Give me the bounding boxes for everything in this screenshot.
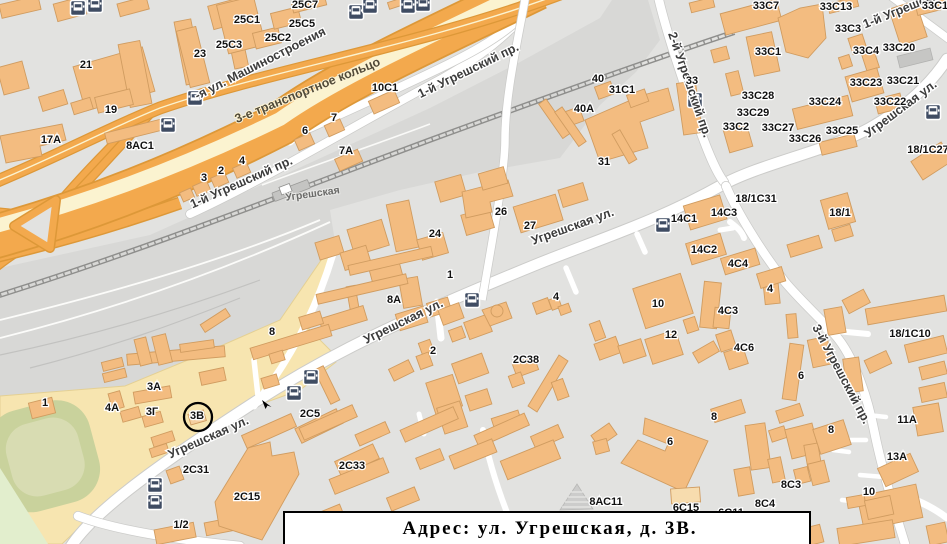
svg-text:6: 6 <box>667 436 673 448</box>
svg-text:3В: 3В <box>190 410 204 422</box>
svg-text:24: 24 <box>429 228 442 240</box>
svg-text:33С13: 33С13 <box>820 1 852 13</box>
svg-text:3: 3 <box>201 172 207 184</box>
svg-text:4: 4 <box>553 291 560 303</box>
svg-text:8АС1: 8АС1 <box>126 140 154 152</box>
svg-text:31С1: 31С1 <box>609 84 635 96</box>
svg-text:14С1: 14С1 <box>671 213 697 225</box>
svg-text:33С4: 33С4 <box>853 45 880 57</box>
svg-text:7: 7 <box>331 112 337 124</box>
svg-text:6: 6 <box>302 125 308 137</box>
svg-text:25С1: 25С1 <box>234 14 260 26</box>
svg-text:33С20: 33С20 <box>883 42 915 54</box>
svg-text:10С1: 10С1 <box>372 82 398 94</box>
svg-text:4: 4 <box>767 283 774 295</box>
svg-text:33С22: 33С22 <box>874 96 906 108</box>
svg-text:4А: 4А <box>105 402 119 414</box>
svg-text:2С31: 2С31 <box>183 464 209 476</box>
svg-text:18/1: 18/1 <box>829 207 850 219</box>
svg-text:33С29: 33С29 <box>737 107 769 119</box>
svg-text:8: 8 <box>269 326 275 338</box>
svg-text:4: 4 <box>239 155 246 167</box>
svg-text:8: 8 <box>828 424 834 436</box>
svg-text:14С2: 14С2 <box>691 244 717 256</box>
svg-text:18/1С27: 18/1С27 <box>907 144 947 156</box>
svg-text:3А: 3А <box>147 381 161 393</box>
svg-text:31: 31 <box>598 156 610 168</box>
svg-text:8С3: 8С3 <box>781 479 801 491</box>
svg-text:4С3: 4С3 <box>718 305 738 317</box>
svg-text:2С5: 2С5 <box>300 408 320 420</box>
svg-text:33С25: 33С25 <box>826 125 858 137</box>
svg-text:33С23: 33С23 <box>850 77 882 89</box>
svg-text:27: 27 <box>524 220 536 232</box>
svg-text:33С3: 33С3 <box>835 23 861 35</box>
svg-text:40: 40 <box>592 73 604 85</box>
svg-text:14С3: 14С3 <box>711 207 737 219</box>
svg-text:13А: 13А <box>887 451 907 463</box>
svg-text:33С7: 33С7 <box>753 0 779 12</box>
svg-text:33: 33 <box>686 75 698 87</box>
svg-text:7А: 7А <box>339 145 353 157</box>
svg-text:33С26: 33С26 <box>789 133 821 145</box>
svg-text:40А: 40А <box>574 103 594 115</box>
svg-text:33С1: 33С1 <box>755 46 781 58</box>
svg-text:25С7: 25С7 <box>292 0 318 11</box>
svg-text:33С21: 33С21 <box>887 75 919 87</box>
svg-text:6: 6 <box>798 370 804 382</box>
svg-text:18/1С10: 18/1С10 <box>889 328 931 340</box>
svg-text:21: 21 <box>80 59 92 71</box>
svg-text:1: 1 <box>447 269 453 281</box>
svg-text:10: 10 <box>863 486 875 498</box>
svg-text:19: 19 <box>105 104 117 116</box>
svg-text:4С6: 4С6 <box>734 342 754 354</box>
svg-text:4С4: 4С4 <box>728 258 749 270</box>
svg-text:2: 2 <box>430 345 436 357</box>
svg-text:25С5: 25С5 <box>289 18 315 30</box>
svg-text:8: 8 <box>711 411 717 423</box>
svg-text:17А: 17А <box>41 134 61 146</box>
svg-text:1/2: 1/2 <box>173 519 188 531</box>
svg-text:23: 23 <box>194 48 206 60</box>
svg-text:33С2: 33С2 <box>723 121 749 133</box>
svg-text:12: 12 <box>665 329 677 341</box>
svg-text:8С4: 8С4 <box>755 498 776 510</box>
svg-text:18/1С31: 18/1С31 <box>735 193 777 205</box>
svg-text:25С2: 25С2 <box>265 32 291 44</box>
svg-text:2С33: 2С33 <box>339 460 365 472</box>
svg-text:10: 10 <box>652 298 664 310</box>
svg-text:2С15: 2С15 <box>234 491 260 503</box>
svg-text:26: 26 <box>495 206 507 218</box>
svg-text:25С3: 25С3 <box>216 39 242 51</box>
svg-text:33С1: 33С1 <box>922 0 947 12</box>
svg-text:8АС11: 8АС11 <box>589 496 622 508</box>
svg-text:1: 1 <box>42 397 48 409</box>
svg-text:33С28: 33С28 <box>742 90 774 102</box>
svg-text:2: 2 <box>218 165 224 177</box>
svg-text:2С38: 2С38 <box>513 354 539 366</box>
svg-text:33С24: 33С24 <box>809 96 842 108</box>
svg-text:3Г: 3Г <box>146 406 159 418</box>
svg-text:11А: 11А <box>897 414 917 426</box>
svg-text:8А: 8А <box>387 294 401 306</box>
svg-text:Адрес: ул. Угрешская, д. 3В.: Адрес: ул. Угрешская, д. 3В. <box>403 518 698 539</box>
